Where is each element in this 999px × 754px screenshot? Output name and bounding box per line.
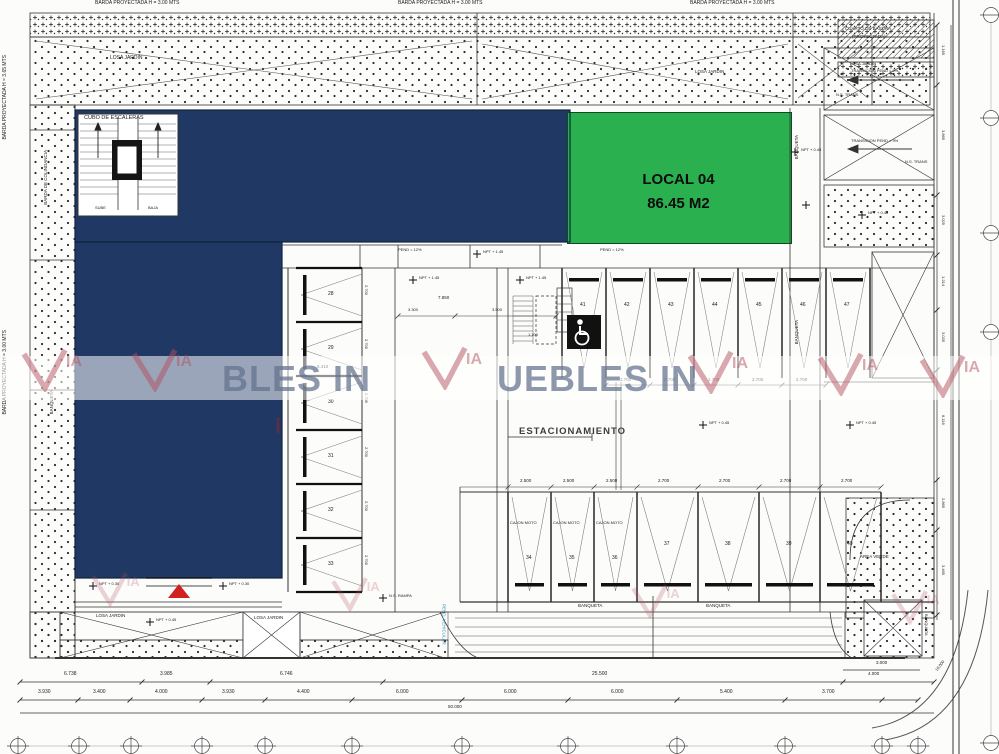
building-mass-navy-left bbox=[75, 242, 282, 578]
slope-12-label-2: PEND = 12% bbox=[600, 248, 624, 252]
local-name: LOCAL 04 bbox=[567, 168, 790, 192]
watermark-text: UEBLES IN bbox=[497, 358, 698, 400]
dim-label: 3.985 bbox=[160, 672, 173, 677]
moto-stall-label: CAJON MOTO bbox=[553, 521, 580, 525]
npt-label: NPT + 0.45 bbox=[801, 148, 821, 152]
rampa-label: RAMPA bbox=[275, 418, 280, 434]
stall-number: 31 bbox=[328, 454, 334, 459]
npt-label: NPT + 1.45 bbox=[526, 276, 546, 280]
red-entry-arrow bbox=[168, 584, 190, 598]
via-logo-text: IA bbox=[927, 592, 940, 607]
via-logo-text: IA bbox=[367, 579, 380, 594]
dim-label-right: 3.035 bbox=[941, 332, 945, 342]
dim-label: 5.400 bbox=[720, 690, 733, 695]
watermark-text: BLES IN bbox=[222, 358, 371, 400]
stall-dim: 2.500 bbox=[606, 479, 617, 484]
losa-jardin-label: LOSA JARDIN bbox=[254, 616, 283, 621]
moto-stall-label: CAJON MOTO bbox=[596, 521, 623, 525]
stall-dim: 2.700 bbox=[658, 479, 669, 484]
stall-number: 43 bbox=[668, 303, 674, 308]
dim-label: 25.500 bbox=[592, 672, 607, 677]
local-04-label: LOCAL 04 86.45 M2 bbox=[567, 168, 790, 216]
vehicular-slope-label: PEND. VEHICULAR bbox=[441, 604, 446, 645]
stall-number: 42 bbox=[624, 303, 630, 308]
via-logo-text: IA bbox=[667, 586, 680, 601]
dim-label-right: 1.214 bbox=[941, 276, 945, 286]
stall-number: 28 bbox=[328, 292, 334, 297]
stall-number: 32 bbox=[328, 508, 334, 513]
dim-label: 3.400 bbox=[93, 690, 106, 695]
dim-label-inner: 7.850 bbox=[438, 296, 449, 301]
npt-label: NPT + 1.45 bbox=[419, 276, 439, 280]
baja-label: BAJA bbox=[148, 206, 158, 210]
dim-label: 6.738 bbox=[64, 672, 77, 677]
entrance-marker bbox=[146, 578, 212, 598]
stall-dim-side: 2.700 bbox=[364, 285, 368, 295]
banqueta-bottom-label-1: BANQUETA bbox=[578, 604, 602, 609]
dim-label-right: 3.865 bbox=[941, 130, 945, 140]
stall-dim: 2.700 bbox=[780, 479, 791, 484]
stall-dim-side: 2.700 bbox=[364, 501, 368, 511]
moto-stall-label: CAJON MOTO bbox=[510, 521, 537, 525]
accessible-parking-icon bbox=[567, 315, 601, 349]
watermark-band: BLES IN UEBLES IN bbox=[0, 356, 999, 400]
stall-dim: 2.700 bbox=[841, 479, 852, 484]
npt-label: NPT + 1.45 bbox=[483, 250, 503, 254]
npt-label: NPT + 0.45 bbox=[709, 421, 729, 425]
dim-label-inner: 3.300 bbox=[408, 308, 418, 312]
barda-left-upper-label: BARDA PROYECTADA H = 3.65 MTS bbox=[3, 55, 8, 140]
npt-label: NPT + 0.45 bbox=[156, 618, 176, 622]
bottom-sidewalk bbox=[30, 596, 934, 658]
dim-label: 6.000 bbox=[396, 690, 409, 695]
dim-label: 6.000 bbox=[504, 690, 517, 695]
dim-label: 6.000 bbox=[611, 690, 624, 695]
stall-number: 39 bbox=[786, 542, 792, 547]
dim-label: 3.930 bbox=[38, 690, 51, 695]
barda-top-center-label: BARDA PROYECTADA H = 3.00 MTS bbox=[398, 1, 483, 6]
slope-12-label-1: PEND = 12% bbox=[398, 248, 422, 252]
dim-label-inner: 3.500 bbox=[492, 308, 502, 312]
dim-total-label: 50.000 bbox=[448, 705, 462, 710]
losa-jardin-label: LOSA JARDIN bbox=[110, 56, 143, 61]
stall-dim: 2.500 bbox=[520, 479, 531, 484]
stall-number: 37 bbox=[664, 542, 670, 547]
npt-label: NPT + 0.30 bbox=[229, 582, 249, 586]
dim-label: 4.000 bbox=[868, 672, 879, 677]
dim-label-corner: 10.000 bbox=[935, 660, 946, 672]
ns-trans-label-1: N.S. TRANS bbox=[836, 93, 858, 97]
dim-label: 3.000 bbox=[876, 661, 887, 666]
trash-room-label-1: CUARTO DE BASURA bbox=[845, 27, 891, 32]
top-garden-band bbox=[30, 13, 930, 105]
dim-label: 4.400 bbox=[297, 690, 310, 695]
dim-label: 3.930 bbox=[222, 690, 235, 695]
dim-label: 3.700 bbox=[822, 690, 835, 695]
stall-number: 33 bbox=[328, 562, 334, 567]
sube-label: SUBE bbox=[95, 206, 106, 210]
dim-label: 4.000 bbox=[155, 690, 168, 695]
stall-dim: 2.700 bbox=[719, 479, 730, 484]
banqueta-right-label-1: BANQUETA bbox=[795, 135, 800, 159]
npt-label: NPT + 0.45 bbox=[856, 421, 876, 425]
trash-room-label-2: (PROYECTADA) bbox=[852, 35, 886, 40]
ns-rampa-label: N.S. RAMPA bbox=[389, 594, 412, 598]
ns-trans-label-2: N.S. TRANS bbox=[905, 160, 927, 164]
stall-dim-side: 2.700 bbox=[364, 555, 368, 565]
banqueta-bottom-label-2: BANQUETA bbox=[706, 604, 730, 609]
stall-dim: 2.500 bbox=[563, 479, 574, 484]
dim-label: 6.746 bbox=[280, 672, 293, 677]
stair-core-label: CUBO DE ESCALERAS bbox=[84, 116, 144, 122]
dim-label-right: 3.465 bbox=[941, 565, 945, 575]
losa-jardin-label: LOSA JARDIN bbox=[96, 614, 125, 619]
npt-label: NPT + 0.45 bbox=[868, 211, 888, 215]
stall-number: 44 bbox=[712, 303, 718, 308]
barda-top-left-label: BARDA PROYECTADA H = 3.00 MTS bbox=[95, 1, 180, 6]
stall-number: 41 bbox=[580, 303, 586, 308]
stall-number: 45 bbox=[756, 303, 762, 308]
left-parking-stalls bbox=[288, 268, 362, 592]
stall-number: 40 bbox=[847, 542, 853, 547]
transition-ramp-label-2: TRANSICION PEND = 9% bbox=[851, 139, 898, 143]
losa-jardin-label: LOSA JARDIN bbox=[850, 62, 876, 66]
dim-label-inner: 1.100 bbox=[528, 333, 538, 337]
stall-number: 34 bbox=[526, 556, 532, 561]
local-area: 86.45 M2 bbox=[567, 192, 790, 216]
stall-number: 38 bbox=[725, 542, 731, 547]
stall-number: 46 bbox=[800, 303, 806, 308]
right-ramp-zone bbox=[790, 13, 934, 656]
dim-label-right: 6.116 bbox=[941, 415, 945, 425]
colindancia-label: BARDA DE COLINDANCIA bbox=[44, 150, 49, 205]
floor-plan: BARDA PROYECTADA H = 3.00 MTS BARDA PROY… bbox=[0, 0, 999, 754]
stall-number: 30 bbox=[328, 400, 334, 405]
bottom-parking-stalls bbox=[460, 485, 934, 603]
banqueta-right-label-2: BANQUETA bbox=[795, 320, 800, 344]
npt-label: NPT + 0.30 bbox=[99, 582, 119, 586]
barda-top-right-label: BARDA PROYECTADA H = 3.00 MTS bbox=[690, 1, 775, 6]
losa-jardin-label: LOSA JARDIN bbox=[695, 70, 724, 75]
parking-area-label: ESTACIONAMIENTO bbox=[519, 427, 626, 437]
stall-number: 36 bbox=[612, 556, 618, 561]
stall-dim-side: 2.700 bbox=[364, 447, 368, 457]
area-verde-label: AREA VERDE bbox=[860, 555, 889, 560]
stall-number: 29 bbox=[328, 346, 334, 351]
stall-number: 47 bbox=[844, 303, 850, 308]
transition-ramp-label-1: TRANSICION PEND = 9% bbox=[851, 69, 898, 73]
street-corner bbox=[872, 590, 988, 740]
stall-number: 35 bbox=[569, 556, 575, 561]
dim-label-right: 1.165 bbox=[941, 45, 945, 55]
dim-label-right: 3.025 bbox=[941, 215, 945, 225]
dim-label-right: 2.865 bbox=[941, 498, 945, 508]
building-mass-navy-top bbox=[75, 110, 570, 242]
stall-dim-side: 2.700 bbox=[364, 339, 368, 349]
banqueta-corner-label: BANQUETA bbox=[924, 614, 928, 636]
